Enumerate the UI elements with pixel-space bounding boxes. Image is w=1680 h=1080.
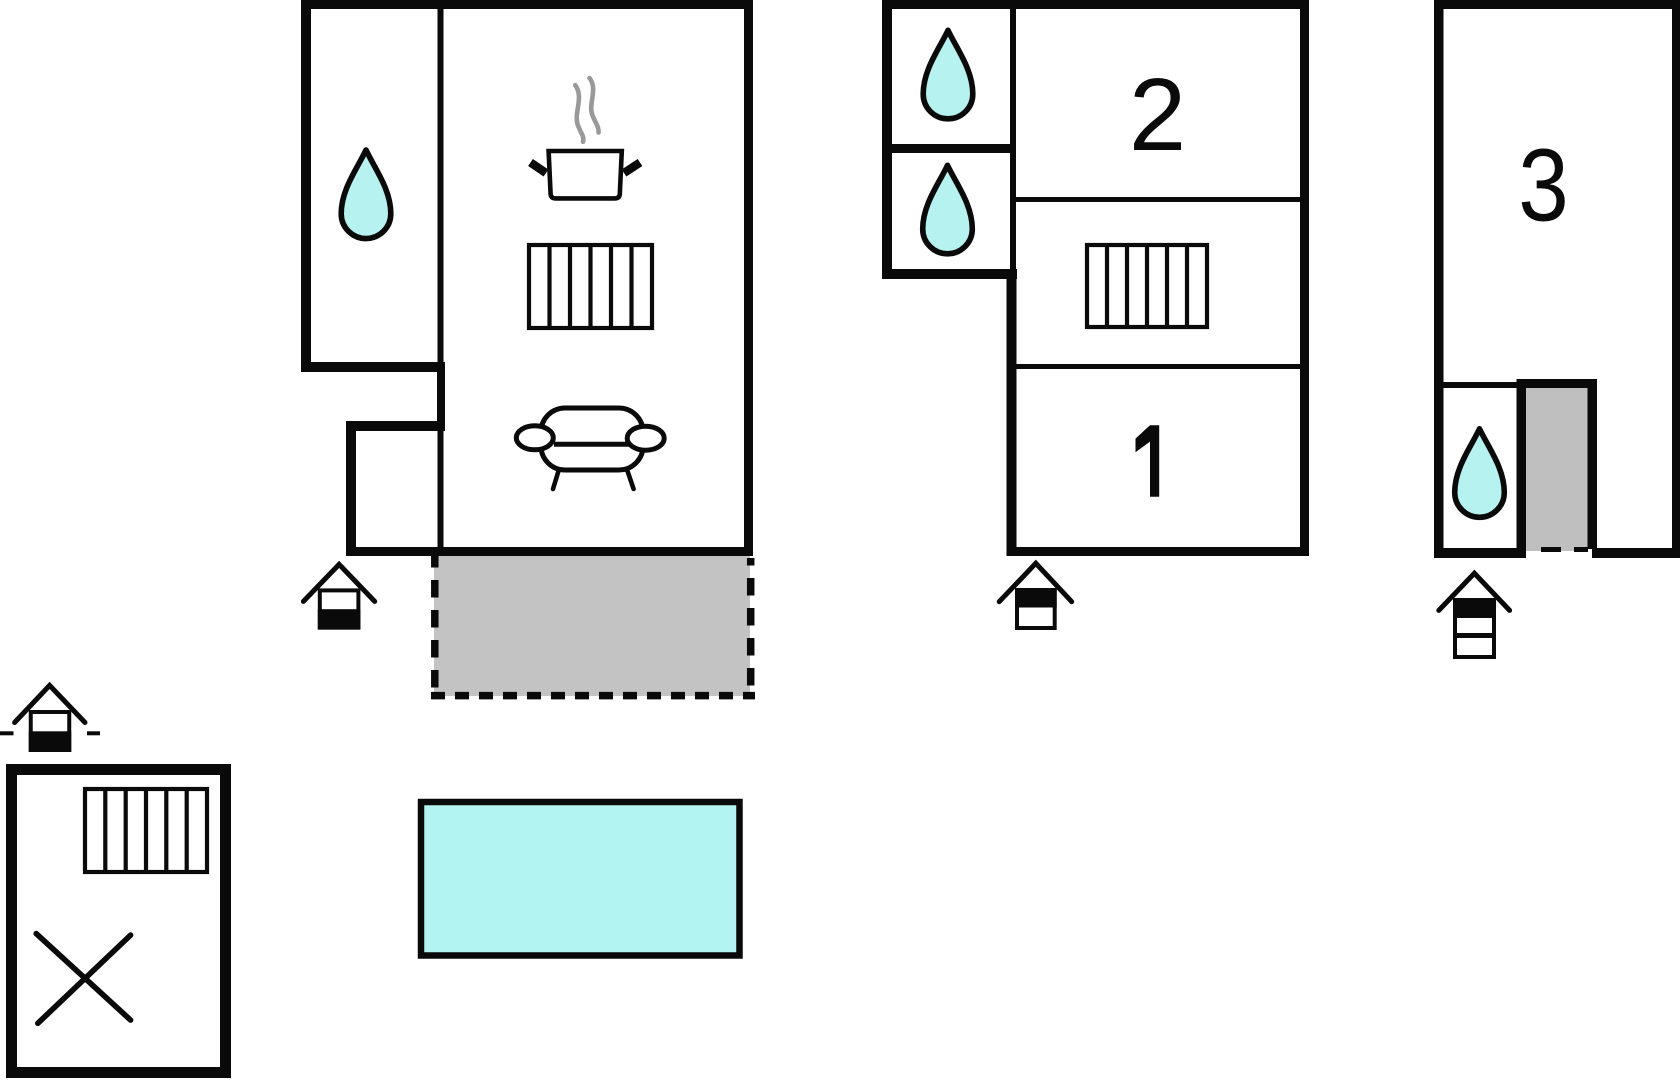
svg-text:2: 2 <box>1129 57 1186 172</box>
svg-text:3: 3 <box>1518 128 1569 243</box>
